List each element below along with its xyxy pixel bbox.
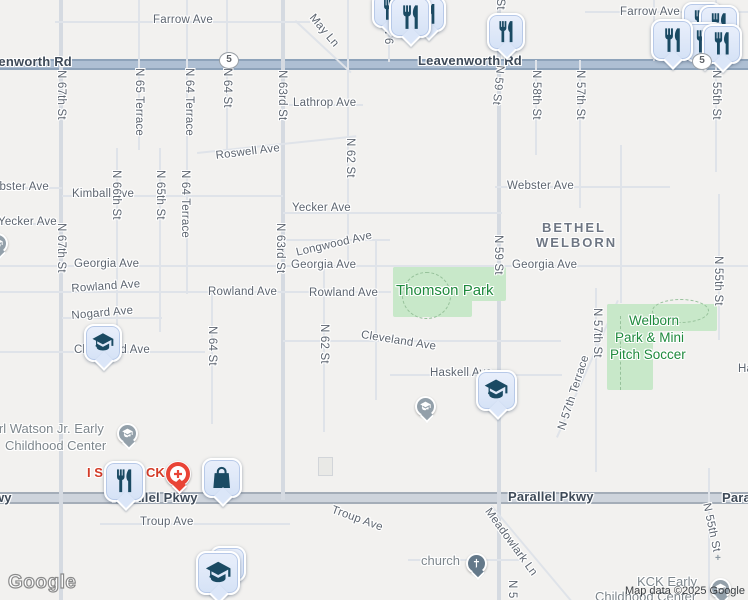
map-chrome: Google Map data ©2025 Google: [0, 0, 748, 600]
map-canvas[interactable]: + Leavenworth RdLeavenworth RdParallel P…: [0, 0, 748, 600]
map-attribution[interactable]: Map data ©2025 Google: [625, 585, 745, 597]
google-logo[interactable]: Google: [8, 572, 76, 594]
